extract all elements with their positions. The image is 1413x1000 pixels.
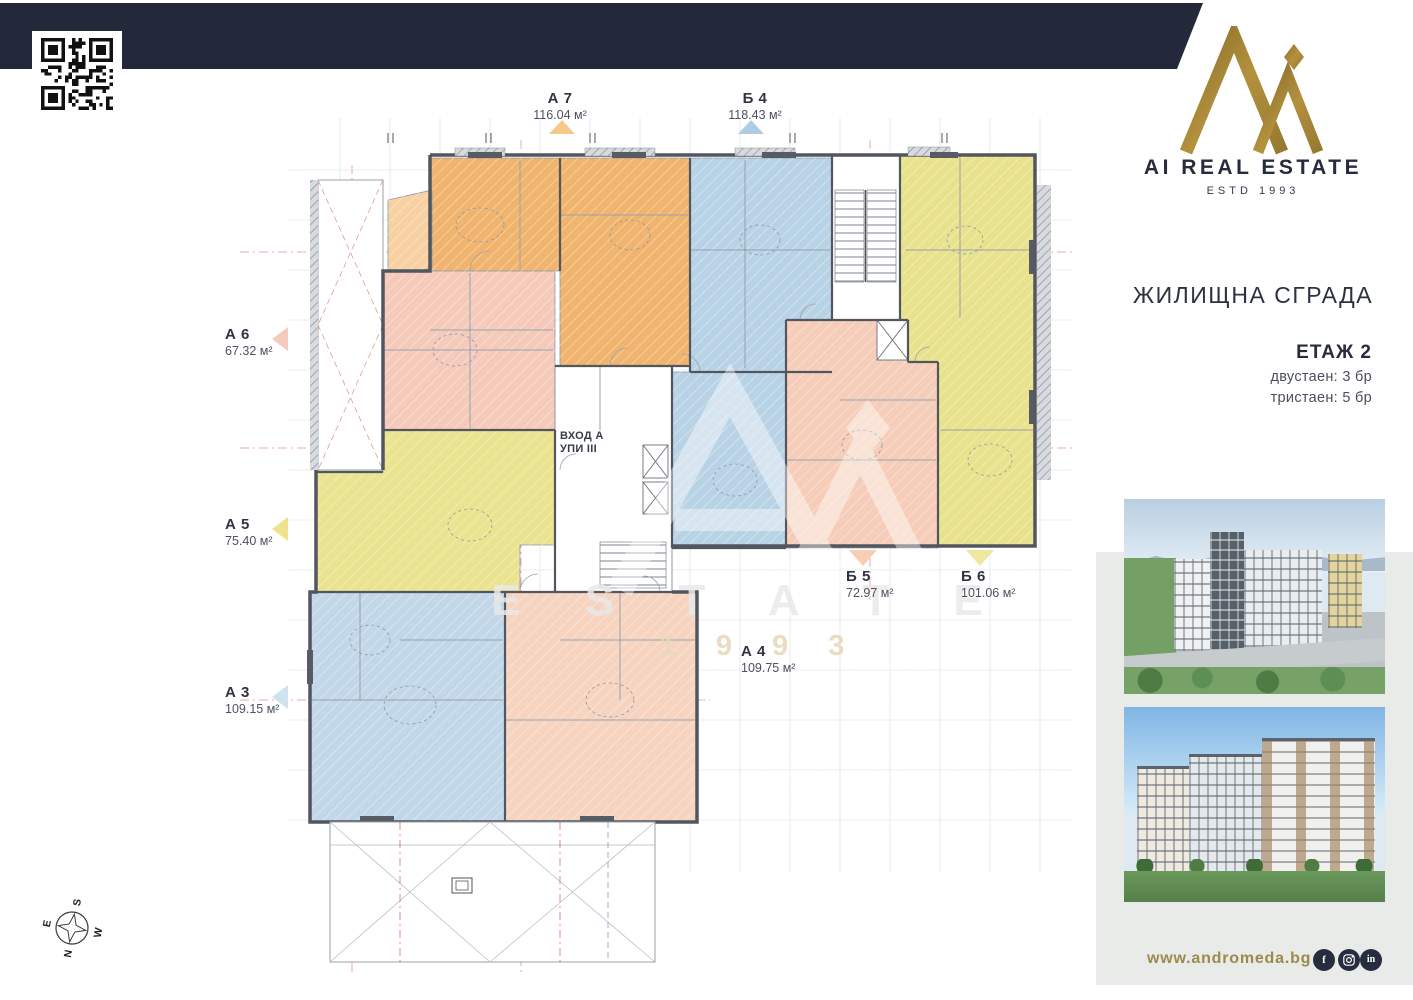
facebook-icon[interactable]: f	[1313, 949, 1335, 971]
render-art-layer	[1124, 871, 1385, 902]
apartment-label-a6: А 6 67.32 м²	[225, 326, 273, 359]
apartment-id: А 5	[225, 516, 273, 533]
project-title: ЖИЛИЩНА СГРАДА	[1100, 282, 1406, 309]
apartment-marker-a6	[272, 327, 288, 351]
apartment-marker-b5	[849, 550, 877, 566]
apartment-marker-a3	[272, 685, 288, 709]
apartment-area: 75.40 м²	[225, 534, 273, 548]
garage-ramp	[330, 822, 655, 962]
svg-text:N: N	[62, 949, 75, 959]
apartment-id: А 6	[225, 326, 273, 343]
apartment-id: Б 4	[705, 90, 805, 107]
building-render-1	[1124, 499, 1385, 694]
apartment-label-a7: А 7 116.04 м²	[510, 90, 610, 123]
instagram-icon[interactable]	[1338, 949, 1360, 971]
website-link[interactable]: www.andromeda.bg	[1147, 950, 1311, 968]
render-art-layer	[1262, 738, 1374, 874]
apartment-marker-a5	[272, 517, 288, 541]
qr-code	[32, 31, 122, 116]
render-art-layer	[1189, 754, 1262, 874]
render-art-layer	[1328, 554, 1362, 628]
instagram-glyph	[1343, 954, 1355, 966]
apartment-label-b6: Б 6 101.06 м²	[961, 568, 1015, 601]
brochure-page: N E S W E S T A T E 1 9 9 3 А 7 116.04 м…	[0, 0, 1413, 1000]
entrance-label: ВХОД А УПИ III	[560, 430, 604, 456]
facebook-glyph: f	[1313, 949, 1335, 971]
unit-line-1: двустаен: 3 бр	[1270, 369, 1372, 385]
entrance-line1: ВХОД А	[560, 430, 604, 443]
apartment-id: Б 5	[846, 568, 894, 585]
apartment-label-a5: А 5 75.40 м²	[225, 516, 273, 549]
apartment-marker-b4	[738, 120, 764, 134]
entrance-line2: УПИ III	[560, 443, 604, 456]
apartment-label-a4: А 4 109.75 м²	[741, 643, 795, 676]
render-art-layer	[1124, 667, 1385, 694]
svg-text:E: E	[41, 919, 54, 928]
render-art-layer	[1210, 532, 1244, 651]
apartment-area: 109.75 м²	[741, 661, 795, 675]
apartment-area: 101.06 м²	[961, 586, 1015, 600]
render-art-layer	[1244, 550, 1322, 648]
apartment-label-b4: Б 4 118.43 м²	[705, 90, 805, 123]
brand-estd: ESTD 1993	[1103, 185, 1403, 197]
compass-icon: N E S W	[36, 894, 109, 964]
apartment-area: 67.32 м²	[225, 344, 273, 358]
building-render-2	[1124, 707, 1385, 902]
top-bar	[0, 3, 1203, 69]
apartment-area: 72.97 м²	[846, 586, 894, 600]
floor-info: ЕТАЖ 2 двустаен: 3 бр тристаен: 5 бр	[1270, 342, 1372, 406]
svg-text:W: W	[92, 927, 106, 939]
apartment-id: А 4	[741, 643, 795, 660]
brand-logo-icon	[1178, 26, 1330, 156]
floor-title: ЕТАЖ 2	[1270, 342, 1372, 364]
apartment-id: Б 6	[961, 568, 1015, 585]
apartment-marker-b6	[966, 550, 994, 566]
apartment-marker-a7	[549, 120, 575, 134]
unit-line-2: тристаен: 5 бр	[1270, 390, 1372, 406]
linkedin-glyph: in	[1360, 949, 1382, 971]
render-art-layer	[1137, 766, 1189, 874]
svg-text:S: S	[71, 898, 84, 907]
apartment-label-b5: Б 5 72.97 м²	[846, 568, 894, 601]
apartment-id: А 7	[510, 90, 610, 107]
brand-name: AI REAL ESTATE	[1103, 156, 1403, 180]
linkedin-icon[interactable]: in	[1360, 949, 1382, 971]
